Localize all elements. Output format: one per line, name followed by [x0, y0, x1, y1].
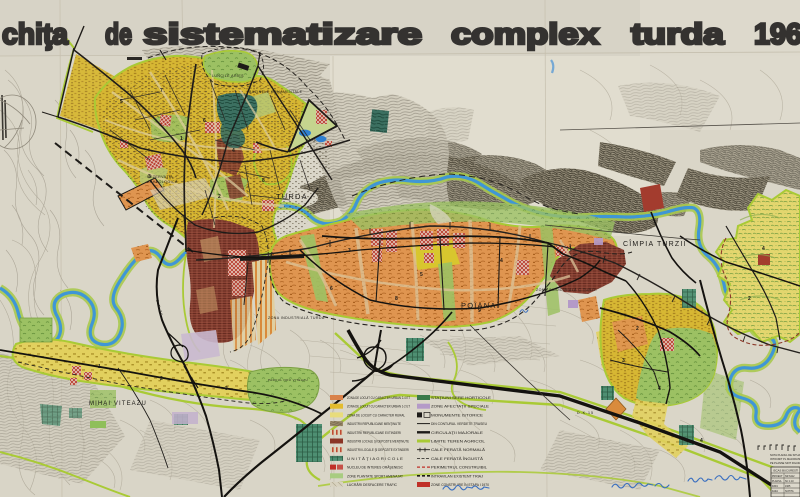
svg-text:NR 6412: NR 6412: [785, 475, 795, 478]
svg-text:ARHEOLOGICĂ: ARHEOLOGICĂ: [147, 180, 178, 184]
svg-text:4: 4: [232, 148, 235, 154]
svg-text:1965: 1965: [785, 485, 791, 488]
svg-text:DIN CONTURUL VERDETE TRASEU: DIN CONTURUL VERDETE TRASEU: [431, 422, 487, 426]
svg-text:ZONA DE LOCUIT CU CARACTER URB: ZONA DE LOCUIT CU CARACTER URBAN 2-4 ET: [347, 396, 411, 400]
svg-text:ZONA INDUSTRIALĂ TURDA: ZONA INDUSTRIALĂ TURDA: [268, 316, 325, 320]
svg-text:BAZINELE ORNAMENTALE: BAZINELE ORNAMENTALE: [249, 90, 303, 94]
svg-text:3: 3: [348, 248, 351, 254]
svg-text:5: 5: [545, 286, 548, 292]
svg-text:PE PLANSE SINT FIGURATE: PE PLANSE SINT FIGURATE: [770, 461, 800, 465]
svg-text:INDUSTRII REPUBLICANE MENŢINUT: INDUSTRII REPUBLICANE MENŢINUTE: [347, 422, 401, 426]
svg-text:turda: turda: [631, 18, 724, 51]
svg-text:4: 4: [658, 386, 661, 392]
svg-text:ZONE PLANTATE SPORT AMENAJAT: ZONE PLANTATE SPORT AMENAJAT: [347, 474, 404, 478]
svg-text:SCHITA: SCHITA: [785, 490, 794, 493]
svg-text:LIMITE TEREN AGRICOL: LIMITE TEREN AGRICOL: [431, 440, 485, 444]
svg-text:PERIMETRUL CONSTRUIBIL: PERIMETRUL CONSTRUIBIL: [431, 466, 487, 470]
svg-text:ZONA DE LOCUIT CU CARACTER URB: ZONA DE LOCUIT CU CARACTER URBAN 1-2 ET: [347, 405, 411, 409]
svg-text:INTOCMIT PL MAJORATE: INTOCMIT PL MAJORATE: [770, 457, 800, 461]
svg-text:PARCUL NOU VITEAZU: PARCUL NOU VITEAZU: [268, 378, 308, 382]
svg-text:8: 8: [262, 178, 265, 184]
svg-text:CIRCULAŢII MAJORALE: CIRCULAŢII MAJORALE: [431, 431, 484, 435]
svg-text:PROIECT: PROIECT: [772, 475, 783, 478]
svg-text:U N I T Ă Ţ I A G R I C O L: U N I T Ă Ţ I A G R I C O L E: [347, 457, 404, 461]
svg-text:INDUSTRII REPUBLICANE EXTINDER: INDUSTRII REPUBLICANE EXTINDERI: [347, 431, 401, 435]
svg-text:2: 2: [218, 194, 221, 200]
svg-text:MIHAI VITEAZU: MIHAI VITEAZU: [89, 401, 147, 407]
svg-text:CALE FERATĂ ÎNGUSTĂ: CALE FERATĂ ÎNGUSTĂ: [431, 457, 484, 461]
svg-text:D.K.15: D.K.15: [577, 411, 594, 415]
svg-text:CALE FERATĂ NORMALĂ: CALE FERATĂ NORMALĂ: [431, 448, 486, 452]
svg-text:ZONA DE LOCUIT CU CARACTER RUR: ZONA DE LOCUIT CU CARACTER RURAL: [347, 413, 405, 417]
svg-text:196: 196: [754, 18, 800, 51]
svg-text:NUCLEU DE INTERES ORĂŞENESC: NUCLEU DE INTERES ORĂŞENESC: [347, 466, 403, 470]
svg-text:4: 4: [500, 258, 503, 264]
svg-text:4: 4: [700, 438, 703, 444]
svg-text:5: 5: [420, 272, 423, 278]
svg-text:LUNCILE ARIEŞ: LUNCILE ARIEŞ: [212, 74, 244, 78]
svg-text:INTRAVILAN EXISTENT TRIAJ: INTRAVILAN EXISTENT TRIAJ: [431, 474, 483, 478]
svg-text:de: de: [105, 18, 132, 51]
svg-text:CÎMPIA TURZII: CÎMPIA TURZII: [623, 239, 687, 248]
svg-text:LUCRĂRI DESFACERE TRAFIC: LUCRĂRI DESFACERE TRAFIC: [347, 483, 397, 487]
svg-text:DATA: DATA: [772, 485, 778, 488]
svg-text:5: 5: [120, 99, 123, 105]
svg-text:ISCAS BUCURESTI: ISCAS BUCURESTI: [773, 469, 799, 473]
svg-text:sistematizare: sistematizare: [143, 18, 422, 51]
svg-text:MONUMENTE ISTORICE: MONUMENTE ISTORICE: [431, 413, 484, 417]
svg-text:REZERVAŢIA: REZERVAŢIA: [147, 175, 173, 179]
svg-text:8: 8: [395, 296, 398, 302]
svg-text:ZONE AFECTAŢII SPECIALE: ZONE AFECTAŢII SPECIALE: [431, 405, 490, 409]
svg-text:INDUSTRII LOCALE ŞI DEPOZITE M: INDUSTRII LOCALE ŞI DEPOZITE MENŢINUTE: [347, 440, 409, 444]
svg-text:3: 3: [148, 174, 151, 180]
svg-text:complex: complex: [451, 18, 599, 51]
svg-text:SC 1:10: SC 1:10: [785, 480, 794, 483]
svg-text:6: 6: [203, 118, 206, 124]
svg-text:chiţa: chiţa: [2, 18, 68, 51]
svg-text:BĂILE: BĂILE: [306, 138, 317, 142]
svg-text:1: 1: [180, 136, 183, 142]
svg-text:2: 2: [160, 376, 163, 382]
svg-text:3: 3: [622, 358, 625, 364]
svg-text:3: 3: [225, 386, 228, 392]
svg-text:STAŢIUNI SERE HORTICOLE: STAŢIUNI SERE HORTICOLE: [431, 396, 492, 400]
svg-text:PLANSA: PLANSA: [772, 480, 782, 483]
svg-text:TURDA: TURDA: [276, 192, 308, 201]
svg-text:7: 7: [160, 88, 163, 94]
svg-text:9: 9: [478, 308, 481, 314]
svg-text:2: 2: [748, 296, 751, 302]
svg-text:4: 4: [762, 246, 765, 252]
svg-text:INDUSTRII LOCALE ŞI DEPOZITE E: INDUSTRII LOCALE ŞI DEPOZITE EXTINDERI: [347, 448, 409, 452]
svg-text:6: 6: [330, 286, 333, 292]
svg-text:1: 1: [98, 364, 101, 370]
svg-text:2: 2: [636, 326, 639, 332]
svg-text:FAZA: FAZA: [772, 490, 778, 493]
svg-text:NOTA PLANUL DE SITUATIE: NOTA PLANUL DE SITUATIE: [770, 453, 800, 457]
